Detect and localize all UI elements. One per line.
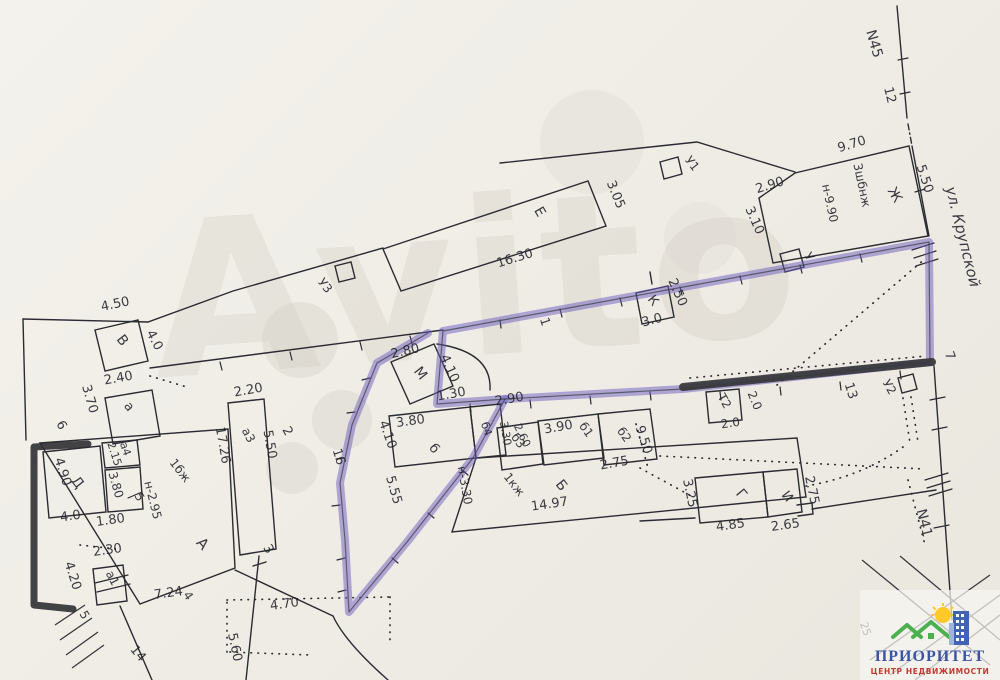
plan-dimension-label: н-2.95 [141,479,164,520]
plan-dimension-label: 1.80 [95,511,126,530]
label-building-i: И [778,488,796,505]
plan-dimension-label: 3.80 [395,412,426,431]
label-point-6: 6 [53,418,70,432]
label-building-a: А [193,534,214,554]
realtor-logo-title: ПРИОРИТЕТ [875,649,985,665]
survey-ticks [95,58,952,592]
plan-dimension-label: 1кж [501,470,528,499]
label-building-e: Е [530,204,548,220]
label-street: ул. Крупской [941,184,984,290]
plan-labels: N45129.705.502.903.103шбнжн-9.90ЖЕ3.0516… [51,28,984,665]
plan-dimension-label: 2.65 [770,516,801,535]
plan-dimension-label: 2.90 [494,390,525,410]
label-shed-u2: У2 [880,377,900,397]
plan-dimension-label: б1 [576,420,596,440]
plan-dimension-label: 4.70 [269,595,300,614]
plan-dimension-label: 16.30 [495,246,535,271]
plan-dimension-label: 2.90 [754,174,786,197]
label-point-3: 3 [259,542,276,557]
plan-dimension-label: 9.50 [632,424,655,456]
label-building-m: М [410,364,430,383]
label-shed-u3: У3 [315,275,335,295]
plan-dimension-label: 2.0 [720,415,741,432]
label-boundary-n45: N45 [862,28,885,60]
plan-dimension-label: 1бж [167,456,194,485]
shed-u1 [660,157,682,179]
label-point-7: 7 [941,349,958,362]
plan-dimension-label: 7.24 [153,584,184,603]
plan-dimension-label: 4.0 [59,508,82,526]
roof-window-icon [928,633,934,639]
hatch-marks [55,556,1000,680]
label-point-14: 14 [127,643,149,665]
plan-dimension-label: 3.0 [640,311,664,331]
plan-dimension-label: 3.90 [543,418,574,438]
shed-u3 [335,262,355,282]
plan-dimension-label: б2 [614,425,634,445]
sun-icon [935,607,951,623]
plan-dimension-label: 3.05 [603,178,628,210]
plan-dimension-label: 2.40 [103,369,134,389]
label-shed-t2: Т2 [714,390,734,411]
plan-dimension-label: а3 [239,425,258,445]
building-g [695,472,768,523]
plan-dimension-label: н-9.90 [819,183,841,224]
plan-dimension-label: 3.80 [105,470,126,500]
plan-dimension-label: 4.0 [143,328,166,353]
site-plan: N45129.705.502.903.103шбнжн-9.90ЖЕ3.0516… [0,0,1000,680]
realtor-logo: ПРИОРИТЕТ ЦЕНТР НЕДВИЖИМОСТИ [860,590,1000,680]
plan-dimension-label: 3шбнж [850,162,873,209]
label-building-v: В [113,332,132,349]
label-point-2: 2 [279,424,296,438]
plan-dimension-label: 2.80 [389,341,421,362]
label-building-b: Б [552,477,571,494]
plan-dimension-label: 2.30 [92,541,123,560]
plan-dimension-label: а [120,399,137,415]
label-building-g: Г [732,486,750,503]
label-point-12: 12 [880,85,899,105]
office-building-icon [949,611,969,645]
plan-dimension-label: 3.10 [741,204,766,237]
label-point-13: 13 [841,381,860,401]
plan-dimension-label: 2.20 [233,381,264,401]
plan-dimension-label: 4.85 [715,516,746,535]
plan-dimension-label: 5.50 [260,429,280,460]
plan-dimension-label: 14.97 [530,495,569,515]
realtor-logo-icon [887,603,973,649]
plan-dimension-label: 5.60 [224,632,245,663]
plan-dimension-label: 4.50 [100,294,131,315]
label-building-b-small: б [425,441,442,457]
plan-dimension-label: 4.90 [51,456,74,488]
label-boundary-n41: N41 [913,507,935,538]
scanned-plan-photo: Avito [0,0,1000,680]
plan-dimension-label: 5.55 [382,474,404,506]
plan-dimension-label: б4 [478,420,495,437]
building-e [383,181,606,291]
realtor-logo-subtitle: ЦЕНТР НЕДВИЖИМОСТИ [871,667,990,676]
plan-dimension-label: 2.0 [745,389,765,412]
plan-dimension-label: 9.70 [836,133,868,156]
plan-dimension-label: 4.20 [61,560,84,592]
label-building-zh: Ж [884,184,905,205]
roof-icon [893,622,949,637]
plan-dimension-label: 2.75 [801,475,822,506]
label-shed-u1: У1 [682,153,702,173]
plan-dimension-label: 3.70 [78,383,100,415]
plan-dimension-label: 3.25 [679,478,700,509]
